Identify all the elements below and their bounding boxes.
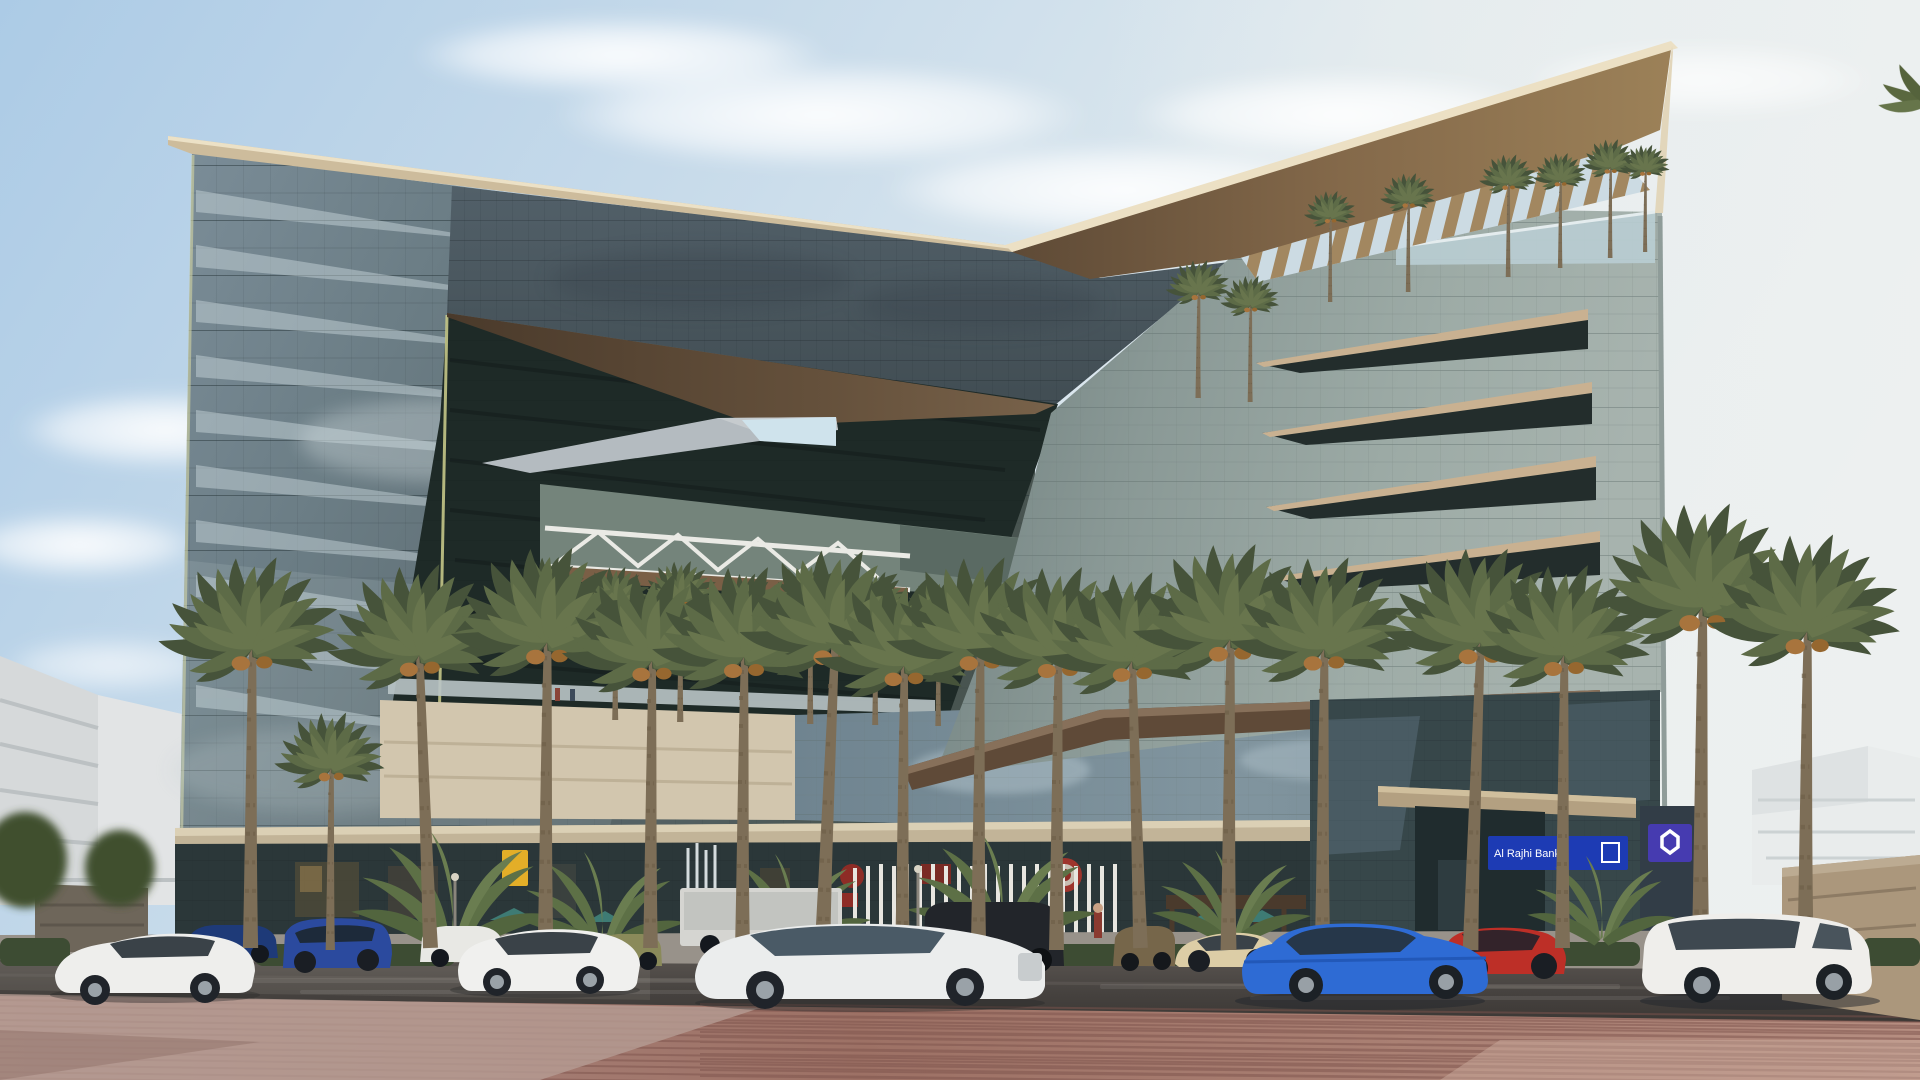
svg-text:Al Rajhi Bank: Al Rajhi Bank [1494,848,1561,860]
